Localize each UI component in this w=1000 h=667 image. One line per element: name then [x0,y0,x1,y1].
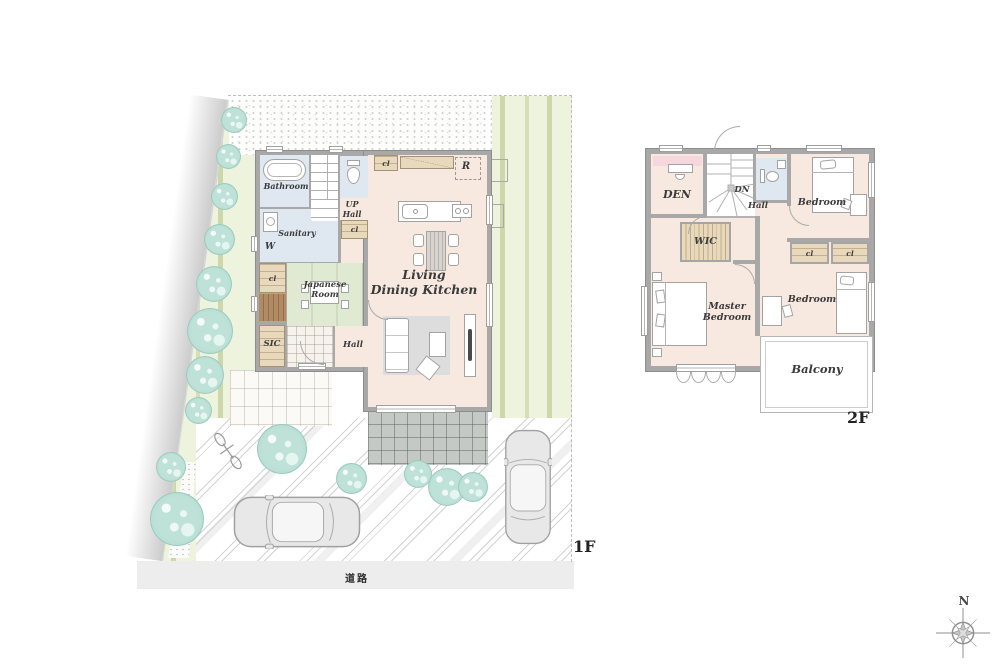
washer-label-text: W [265,242,275,252]
floor2-label-text: 2F [847,408,870,427]
ldk-label: Living Dining Kitchen [364,267,484,297]
bedroom-south-label-text: Bedroom [788,294,836,305]
closet-a-label: cl [806,249,813,258]
closet-a-2f: cl [790,242,829,264]
door-west [251,296,258,312]
dining-chair [448,234,459,247]
up-hall-label-text: Hall [343,209,362,219]
faucet [413,209,418,214]
up-label-text: UP [346,199,359,209]
dining-kitchen-label-text: Dining Kitchen [371,282,478,297]
dining-chair [448,253,459,266]
pillow [840,275,855,285]
window [868,282,875,322]
hall-1f-label-text: Hall [343,340,363,350]
wall [787,238,870,242]
washer-label: W [262,242,278,253]
tree [257,424,307,474]
bathroom-label-text: Bathroom [264,181,309,191]
tree [204,224,235,255]
closet-top-label: cl [382,159,389,168]
tree [156,452,186,482]
sanitary-label: Sanitary [267,229,327,239]
window [868,162,875,198]
tree [216,144,241,169]
tv [468,329,472,361]
tree [458,472,488,502]
closet-mid-label: cl [351,225,358,234]
balcony-label: Balcony [767,363,867,377]
bedroom-south-label: Bedroom [772,294,852,305]
wall [753,154,756,203]
bedroom-north-label: Bedroom [782,197,862,208]
stairs-1f-center-line [327,155,328,199]
window [266,146,283,153]
site-border-east [571,95,572,562]
floor-cushion [301,300,309,309]
balcony-label-text: Balcony [791,362,842,376]
entrance-approach-tiles [230,370,332,426]
coffee-table [429,332,446,357]
tree [196,266,232,302]
road-label-text: 道路 [345,574,369,585]
bed-line [665,282,666,346]
toilet-sink-2f [777,160,786,169]
living-label-text: Living [402,267,445,282]
wood-deck-strip [259,294,286,321]
dn-label-text: DN [734,185,749,195]
tree [186,356,224,394]
floor1-label-text: 1F [573,537,596,556]
compass-rose-icon [934,604,992,662]
tree [221,107,247,133]
nightstand [652,348,662,357]
refrigerator-label: R [455,161,477,173]
window [641,286,648,336]
folding-shutter-mark [706,372,721,383]
terrace-tiles [368,411,488,465]
sofa [385,318,409,373]
washing-machine-drum [266,217,275,226]
folding-shutter-mark [676,372,691,383]
den-label: DEN [651,188,703,201]
burner [463,208,469,214]
floor1-label: 1F [573,537,596,556]
up-hall-label: UP Hall [334,200,370,219]
floor-plan-page: { "floor1": { "label": "1F", "road_label… [0,0,1000,667]
burner [455,208,461,214]
site-border-north [228,95,572,96]
bed-line [812,172,854,173]
lawn-right [492,96,572,418]
window [806,145,842,152]
den-desk [668,164,693,173]
nightstand [652,272,662,281]
tree [150,492,204,546]
wic-label: WIC [694,236,717,247]
closet-b-2f: cl [831,242,869,264]
master-label-text: Master [708,301,745,312]
outdoor-unit [491,159,508,182]
folding-shutter-mark [691,372,706,383]
wall [703,154,707,217]
japanese-room-label-text: Room [311,290,338,300]
master-bedroom-label-text: Bedroom [703,312,751,323]
hall-2f-label-text: Hall [748,201,768,211]
sic-label-text: SIC [264,339,281,349]
dining-table [426,231,446,271]
window [486,195,493,225]
car-icon [504,426,552,548]
hall-1f-label: Hall [333,340,373,350]
closet-left-1f: cl [259,263,286,293]
toilet-tank-2f [760,169,765,183]
floor-cushion [341,300,349,309]
closet-mid-1f: cl [341,220,368,239]
window [329,146,343,153]
bathtub [263,159,306,181]
sic-label: SIC [252,339,292,349]
bed-line [836,289,867,290]
tree [211,183,238,210]
window [757,145,771,152]
dn-label: DN [726,185,758,195]
den-label-text: DEN [663,188,691,201]
hall-2f-label: Hall [738,201,778,211]
pillow [820,159,837,170]
car-icon [233,495,361,549]
dining-chair [413,253,424,266]
road-label: 道路 [327,570,387,585]
tree [336,463,367,494]
terrace-sliding-door [376,405,456,413]
dining-chair [413,234,424,247]
sanitary-label-text: Sanitary [278,228,316,238]
folding-shutter-mark [721,372,736,383]
refrigerator-label-text: R [462,161,470,172]
kitchen-counter [400,156,454,169]
japanese-label-text: Japanese [304,280,347,290]
bathroom-label: Bathroom [256,182,316,192]
door-west [251,236,258,252]
toilet-tank-1f [347,160,360,166]
master-bedroom-label: Master Bedroom [689,301,765,324]
window [659,145,683,152]
bedroom-north-label-text: Bedroom [798,197,846,208]
closet-b-label: cl [846,249,853,258]
master-balcony-window [676,364,736,372]
closet-left-label: cl [269,274,276,283]
stair-edge [707,216,755,218]
window [486,283,493,327]
tree [187,308,233,354]
toilet-bowl-2f [766,171,779,182]
floor2-label: 2F [847,408,870,427]
closet-top-1f: cl [374,155,398,171]
door-swing-arc [714,126,740,152]
japanese-room-label: Japanese Room [287,280,363,300]
tree [185,397,212,424]
